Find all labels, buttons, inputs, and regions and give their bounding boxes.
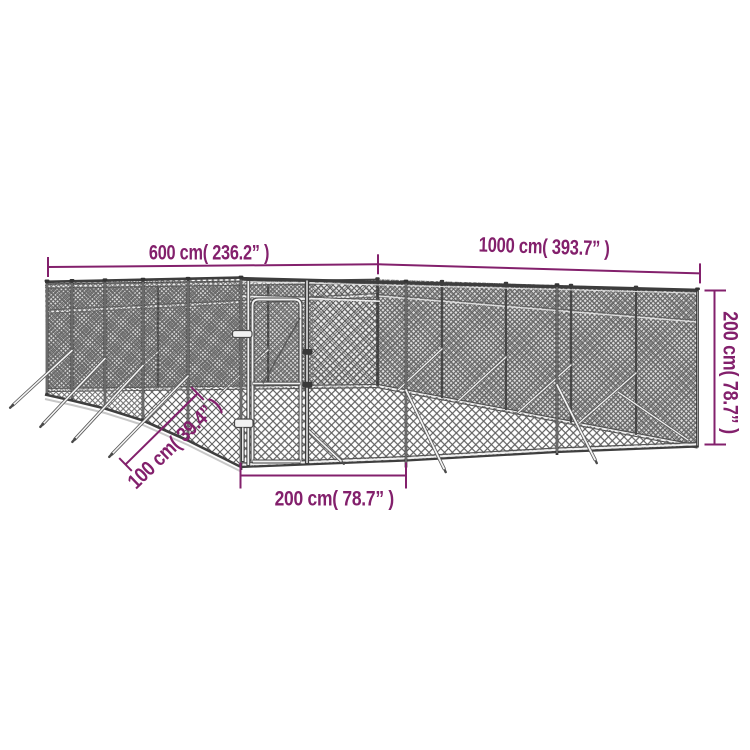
svg-text:1000 cm( 393.7” ): 1000 cm( 393.7” ) xyxy=(478,234,610,261)
svg-text:200 cm( 78.7” ): 200 cm( 78.7” ) xyxy=(719,311,742,434)
svg-text:600 cm( 236.2” ): 600 cm( 236.2” ) xyxy=(149,241,269,264)
svg-text:200 cm( 78.7” ): 200 cm( 78.7” ) xyxy=(275,487,394,510)
